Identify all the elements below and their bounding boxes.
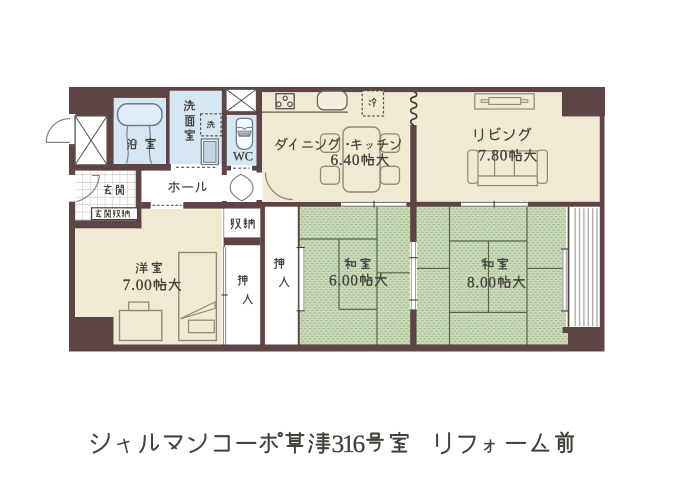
svg-text:0: 0 [144, 277, 152, 294]
svg-text:0: 0 [488, 274, 496, 291]
svg-text:8: 8 [491, 148, 499, 165]
svg-text:.: . [337, 272, 341, 289]
svg-text:7: 7 [123, 277, 131, 294]
svg-text:.: . [131, 277, 135, 294]
svg-text:0: 0 [136, 277, 144, 294]
svg-text:0: 0 [342, 272, 350, 289]
svg-text:8: 8 [467, 274, 475, 291]
svg-text:.: . [339, 152, 343, 169]
svg-text:.: . [487, 148, 491, 165]
svg-text:0: 0 [352, 152, 360, 169]
svg-text:4: 4 [344, 152, 352, 169]
svg-text:7: 7 [478, 148, 486, 165]
svg-text:6: 6 [331, 152, 339, 169]
svg-text:6: 6 [353, 429, 366, 458]
svg-text:6: 6 [329, 272, 337, 289]
svg-text:0: 0 [480, 274, 488, 291]
svg-text:0: 0 [500, 148, 508, 165]
svg-text:WC: WC [233, 150, 253, 164]
svg-text:.: . [475, 274, 479, 291]
svg-text:0: 0 [350, 272, 358, 289]
